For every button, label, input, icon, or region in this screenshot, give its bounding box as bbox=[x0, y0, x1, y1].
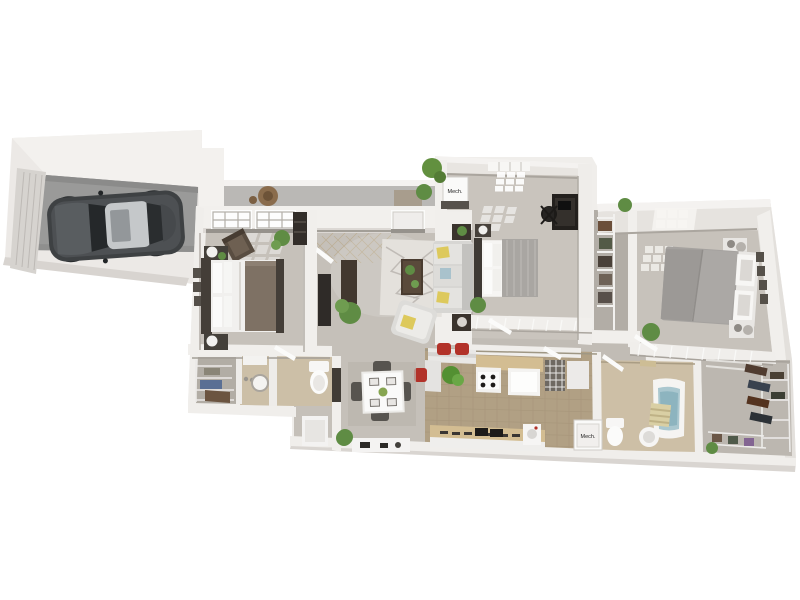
svg-text:Mech.: Mech. bbox=[581, 434, 596, 440]
svg-text:Mech.: Mech. bbox=[448, 189, 463, 195]
